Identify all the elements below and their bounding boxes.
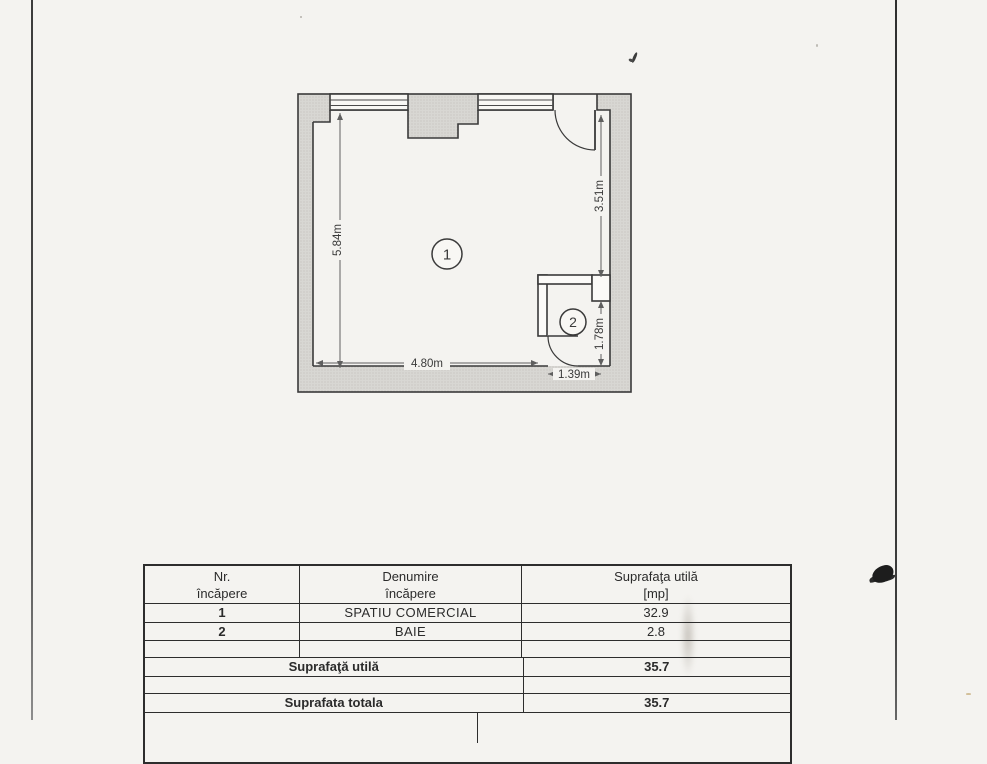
paper-speck <box>966 693 971 695</box>
dimension-left-label: 5.84m <box>332 224 344 256</box>
scan-edge-line-right <box>895 0 897 720</box>
total-usable-label: Suprafaţă utilă <box>145 658 524 677</box>
paper-speck <box>816 44 818 47</box>
header-line: Suprafaţa utilă <box>614 568 698 585</box>
entrance-door <box>555 110 595 150</box>
floor-plan-drawing: 5.84m 3.51m 1.78m 4.80m 1.39m 1 2 <box>285 80 645 405</box>
dimension-right-upper: 3.51m <box>591 176 606 216</box>
header-line: [mp] <box>643 585 668 602</box>
header-line: Nr. <box>214 568 231 585</box>
room-1-marker: 1 <box>432 239 462 269</box>
dimension-bathroom-width: 1.39m <box>553 368 595 381</box>
pen-mark <box>631 52 638 63</box>
room-1-number: 1 <box>443 247 451 264</box>
door-swing-arc <box>548 336 578 366</box>
total-usable-row: Suprafaţă utilă 35.7 <box>145 658 790 678</box>
window-2 <box>478 94 553 110</box>
exterior-walls <box>298 94 631 392</box>
header-nr-incapere: Nr. încăpere <box>145 566 300 603</box>
row-nr: 2 <box>145 623 300 641</box>
room-2-number: 2 <box>569 314 577 330</box>
total-overall-label: Suprafata totala <box>145 694 524 713</box>
dimension-bathroom-width-label: 1.39m <box>558 369 590 381</box>
total-overall-value: 35.7 <box>524 694 791 713</box>
header-suprafata: Suprafaţa utilă [mp] <box>522 566 790 603</box>
total-overall-row: Suprafata totala 35.7 <box>145 694 790 714</box>
row-name: SPATIU COMERCIAL <box>300 604 522 622</box>
header-line: încăpere <box>197 585 248 602</box>
header-line: încăpere <box>385 585 436 602</box>
dimension-left: 5.84m <box>329 220 344 260</box>
area-table: Nr. încăpere Denumire încăpere Suprafaţa… <box>143 564 792 764</box>
empty-cell <box>524 677 791 693</box>
partial-row-divider <box>477 713 478 743</box>
row-name: BAIE <box>300 623 522 641</box>
dimension-bottom: 4.80m <box>404 356 450 370</box>
ink-blob-mark <box>870 563 896 585</box>
row-area: 2.8 <box>522 623 790 641</box>
room-2-marker: 2 <box>560 309 586 335</box>
empty-cell <box>300 641 522 657</box>
door-swing-arc <box>555 110 595 150</box>
spacer-row <box>145 641 790 658</box>
duct-block <box>592 275 610 301</box>
row-area: 32.9 <box>522 604 790 622</box>
dimension-bathroom-height: 1.78m <box>591 314 606 354</box>
empty-cell <box>145 677 524 693</box>
wall-outlines <box>298 94 631 392</box>
row-nr: 1 <box>145 604 300 622</box>
empty-cell <box>145 641 300 657</box>
header-denumire: Denumire încăpere <box>300 566 522 603</box>
paper-speck <box>300 16 302 18</box>
floor-plan-svg: 5.84m 3.51m 1.78m 4.80m 1.39m 1 2 <box>285 80 645 405</box>
dimension-bottom-label: 4.80m <box>411 358 443 370</box>
partial-next-row <box>145 713 790 743</box>
scan-edge-line-left <box>31 0 33 720</box>
header-line: Denumire <box>382 568 438 585</box>
table-header-row: Nr. încăpere Denumire încăpere Suprafaţa… <box>145 566 790 604</box>
total-usable-value: 35.7 <box>524 658 791 677</box>
empty-cell <box>522 641 790 657</box>
spacer-row <box>145 677 790 694</box>
dimension-bathroom-height-label: 1.78m <box>594 318 606 350</box>
table-row: 1 SPATIU COMERCIAL 32.9 <box>145 604 790 623</box>
dimension-arrows <box>316 113 604 377</box>
scanned-floorplan-page: { "floor_plan": { "room_labels": [ {"num… <box>0 0 987 720</box>
window-1 <box>330 94 408 110</box>
bathroom-door <box>548 336 578 366</box>
dimension-right-upper-label: 3.51m <box>594 180 606 212</box>
table-row: 2 BAIE 2.8 <box>145 623 790 642</box>
